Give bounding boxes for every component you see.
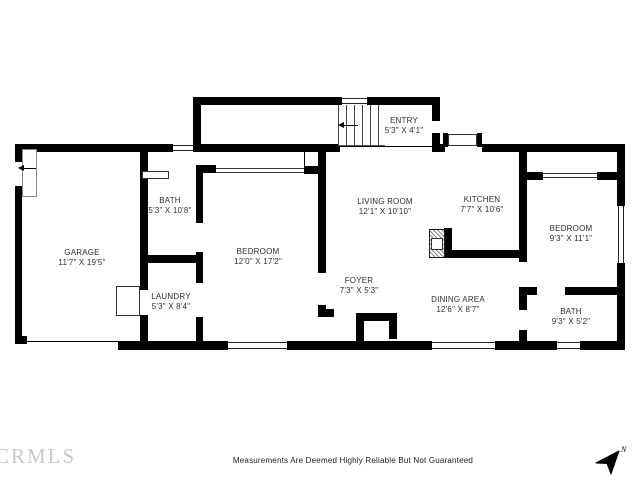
north-compass: N xyxy=(592,443,630,480)
exterior-wall-top xyxy=(193,144,340,152)
room-label-kitchen: KITCHEN 7'7" X 10'6" xyxy=(460,195,503,215)
north-arrow-icon: N xyxy=(592,443,630,479)
window xyxy=(618,206,624,263)
room-dims: 12'0" X 17'2" xyxy=(234,257,282,267)
window xyxy=(557,342,580,349)
room-name: BEDROOM xyxy=(550,224,593,234)
front-door xyxy=(448,134,477,146)
stairs-arrow-head xyxy=(338,122,344,128)
exterior-wall-right xyxy=(617,144,625,206)
garage-door-line xyxy=(27,341,118,342)
room-label-entry: ENTRY 5'3" X 4'1" xyxy=(385,116,424,136)
dining-bath-wall xyxy=(519,287,527,310)
room-dims: 5'3" X 4'1" xyxy=(385,126,424,136)
bedroom-closet-wall xyxy=(196,165,216,173)
room-name: BEDROOM xyxy=(234,247,282,257)
room-name: DINING AREA xyxy=(431,295,485,305)
disclaimer-text: Measurements Are Deemed Highly Reliable … xyxy=(233,456,473,465)
room-dims: 7'7" X 10'6" xyxy=(460,205,503,215)
entry-wall-right xyxy=(432,97,440,121)
room-name: KITCHEN xyxy=(460,195,503,205)
room-dims: 7'3" X 5'3" xyxy=(340,286,379,296)
kitchen-bedroom-wall xyxy=(519,152,527,262)
exterior-wall-bottom xyxy=(118,341,228,350)
foyer-closet-wall xyxy=(356,313,364,342)
room-name: LIVING ROOM xyxy=(357,197,413,207)
room-name: BATH xyxy=(148,196,191,206)
bedroom-closet-wall xyxy=(597,172,617,180)
room-label-garage: GARAGE 11'7" X 19'5" xyxy=(58,248,105,268)
stairs-direction-arrow xyxy=(344,125,358,126)
bath-bedroom-wall xyxy=(196,165,203,223)
laundry-bedroom-wall xyxy=(196,317,203,342)
entry-wall-right xyxy=(432,133,440,152)
side-door-arrow xyxy=(24,168,36,169)
garage-side-door-step xyxy=(22,149,37,197)
side-door-arrow-head xyxy=(18,165,24,171)
exterior-wall-top xyxy=(482,144,625,152)
kitchen-sink xyxy=(431,238,443,250)
kitchen-dining-wall xyxy=(444,250,527,258)
bedroom-bath-wall xyxy=(565,287,617,295)
room-label-living-room: LIVING ROOM 12'1" X 10'10" xyxy=(357,197,413,217)
room-dims: 12'1" X 10'10" xyxy=(357,207,413,217)
front-door-jamb xyxy=(477,133,482,147)
laundry-bedroom-wall xyxy=(196,263,203,283)
room-dims: 12'6" X 8'7" xyxy=(431,305,485,315)
window xyxy=(432,342,495,349)
garage-bath-wall xyxy=(140,152,148,255)
bedroom-living-wall xyxy=(318,152,326,273)
room-dims: 5'3" X 8'4" xyxy=(151,302,191,312)
exterior-wall-left xyxy=(15,186,22,343)
laundry-door xyxy=(116,286,140,316)
room-dims: 5'3" X 10'8" xyxy=(148,206,191,216)
exterior-wall-bottom xyxy=(495,341,557,350)
room-label-bath1: BATH 5'3" X 10'8" xyxy=(148,196,191,216)
room-label-bedroom1: BEDROOM 12'0" X 17'2" xyxy=(234,247,282,267)
exterior-wall-top xyxy=(15,144,173,152)
room-dims: 9'3" X 11'1" xyxy=(550,234,593,244)
foyer-closet-wall xyxy=(389,313,397,339)
room-label-laundry: LAUNDRY 5'3" X 8'4" xyxy=(151,292,191,312)
room-name: GARAGE xyxy=(58,248,105,258)
room-dims: 9'3" X 5'2" xyxy=(552,317,591,327)
wall-corner xyxy=(15,336,27,344)
exterior-wall-right xyxy=(617,263,625,350)
entry-wall-top xyxy=(367,97,440,105)
room-label-dining-area: DINING AREA 12'6" X 8'7" xyxy=(431,295,485,315)
exterior-wall-left xyxy=(15,144,22,162)
entry-wall-left xyxy=(193,97,201,152)
room-name: FOYER xyxy=(340,276,379,286)
foyer-wall-nub xyxy=(318,309,334,317)
window xyxy=(342,98,367,104)
room-label-bath2: BATH 9'3" X 5'2" xyxy=(552,307,591,327)
crmls-watermark: CRMLS xyxy=(0,444,76,469)
closet-slider-doors xyxy=(216,168,304,173)
window xyxy=(228,342,287,349)
room-name: ENTRY xyxy=(385,116,424,126)
room-name: LAUNDRY xyxy=(151,292,191,302)
bedroom-bath-wall xyxy=(527,287,537,295)
bath-bedroom-wall xyxy=(196,252,203,263)
floor-plan: GARAGE 11'7" X 19'5" BATH 5'3" X 10'8" B… xyxy=(0,0,640,480)
entry-wall-top xyxy=(193,97,342,105)
compass-n-label: N xyxy=(620,445,627,454)
closet-slider-doors xyxy=(543,173,597,178)
bath-laundry-wall xyxy=(140,255,203,263)
room-label-foyer: FOYER 7'3" X 5'3" xyxy=(340,276,379,296)
entry-opening-line xyxy=(337,146,437,147)
window xyxy=(173,145,193,151)
bedroom-closet-wall xyxy=(527,172,543,180)
exterior-wall-bottom xyxy=(287,341,432,350)
garage-laundry-wall xyxy=(140,315,148,342)
room-dims: 11'7" X 19'5" xyxy=(58,258,105,268)
room-label-bedroom2: BEDROOM 9'3" X 11'1" xyxy=(550,224,593,244)
bath-vanity xyxy=(142,171,169,179)
dining-bath-wall xyxy=(519,330,527,342)
room-name: BATH xyxy=(552,307,591,317)
